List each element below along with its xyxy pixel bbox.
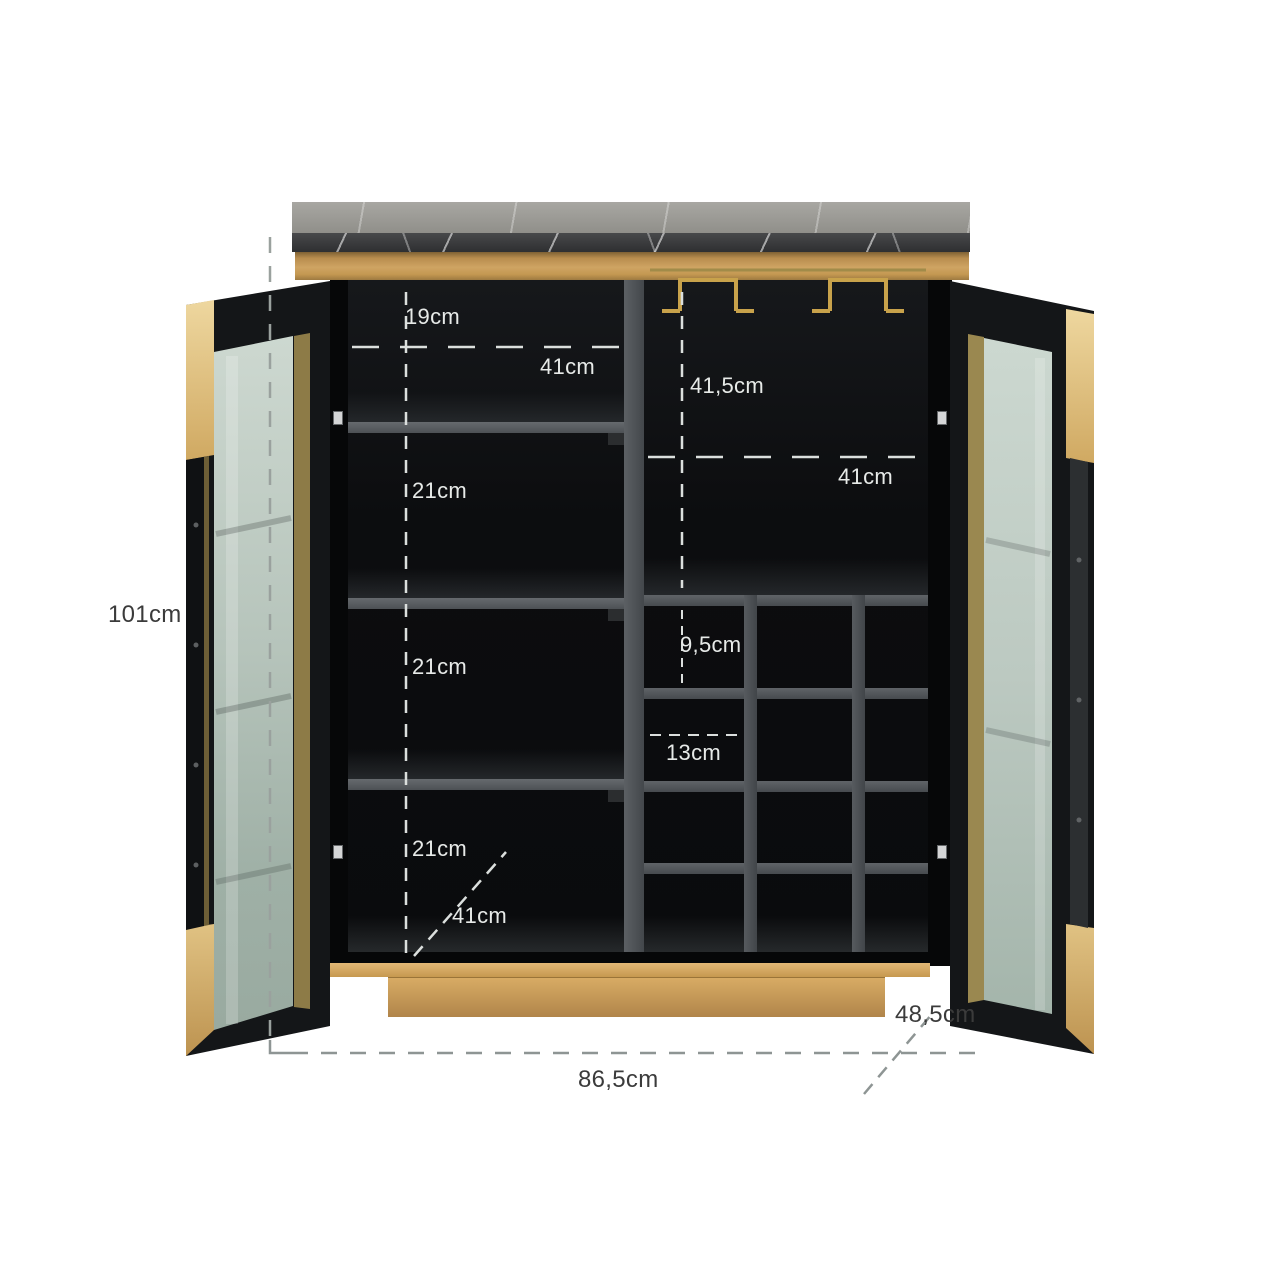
left-door-glass <box>214 336 293 1030</box>
dim-right-top-compartment-height: 41,5cm <box>690 375 764 397</box>
left-door-gold-strip <box>294 333 310 1009</box>
dim-interior-depth: 41cm <box>452 905 507 927</box>
dim-shelf-gap-2: 21cm <box>412 656 467 678</box>
exterior-measure-lines <box>270 237 975 1094</box>
left-glass-door <box>186 281 330 1056</box>
dim-overall-width: 86,5cm <box>578 1068 659 1092</box>
dim-overall-height: 101cm <box>108 603 182 627</box>
glass-rack-rail <box>650 270 926 311</box>
left-door-gold-cap-top <box>186 300 214 460</box>
right-door-gold-strip <box>968 334 984 1003</box>
glass-holder-icon <box>812 280 904 311</box>
product-dimension-diagram: 19cm 41cm 41,5cm 41cm 21cm 21cm 9,5cm 13… <box>0 0 1280 1280</box>
right-glass-door <box>950 281 1094 1054</box>
measure-corner <box>270 1040 292 1053</box>
dim-overall-depth: 48,5cm <box>895 1003 976 1027</box>
glass-holder-icon <box>662 280 754 311</box>
dim-wine-slot-height: 9,5cm <box>680 634 741 656</box>
dim-top-section-height: 19cm <box>405 306 460 328</box>
right-door-gold-cap-top <box>1066 309 1094 463</box>
dim-left-compartment-width: 41cm <box>540 356 595 378</box>
dim-shelf-gap-1: 21cm <box>412 480 467 502</box>
dim-right-compartment-width: 41cm <box>838 466 893 488</box>
dim-wine-slot-width: 13cm <box>666 742 721 764</box>
dim-shelf-gap-3: 21cm <box>412 838 467 860</box>
